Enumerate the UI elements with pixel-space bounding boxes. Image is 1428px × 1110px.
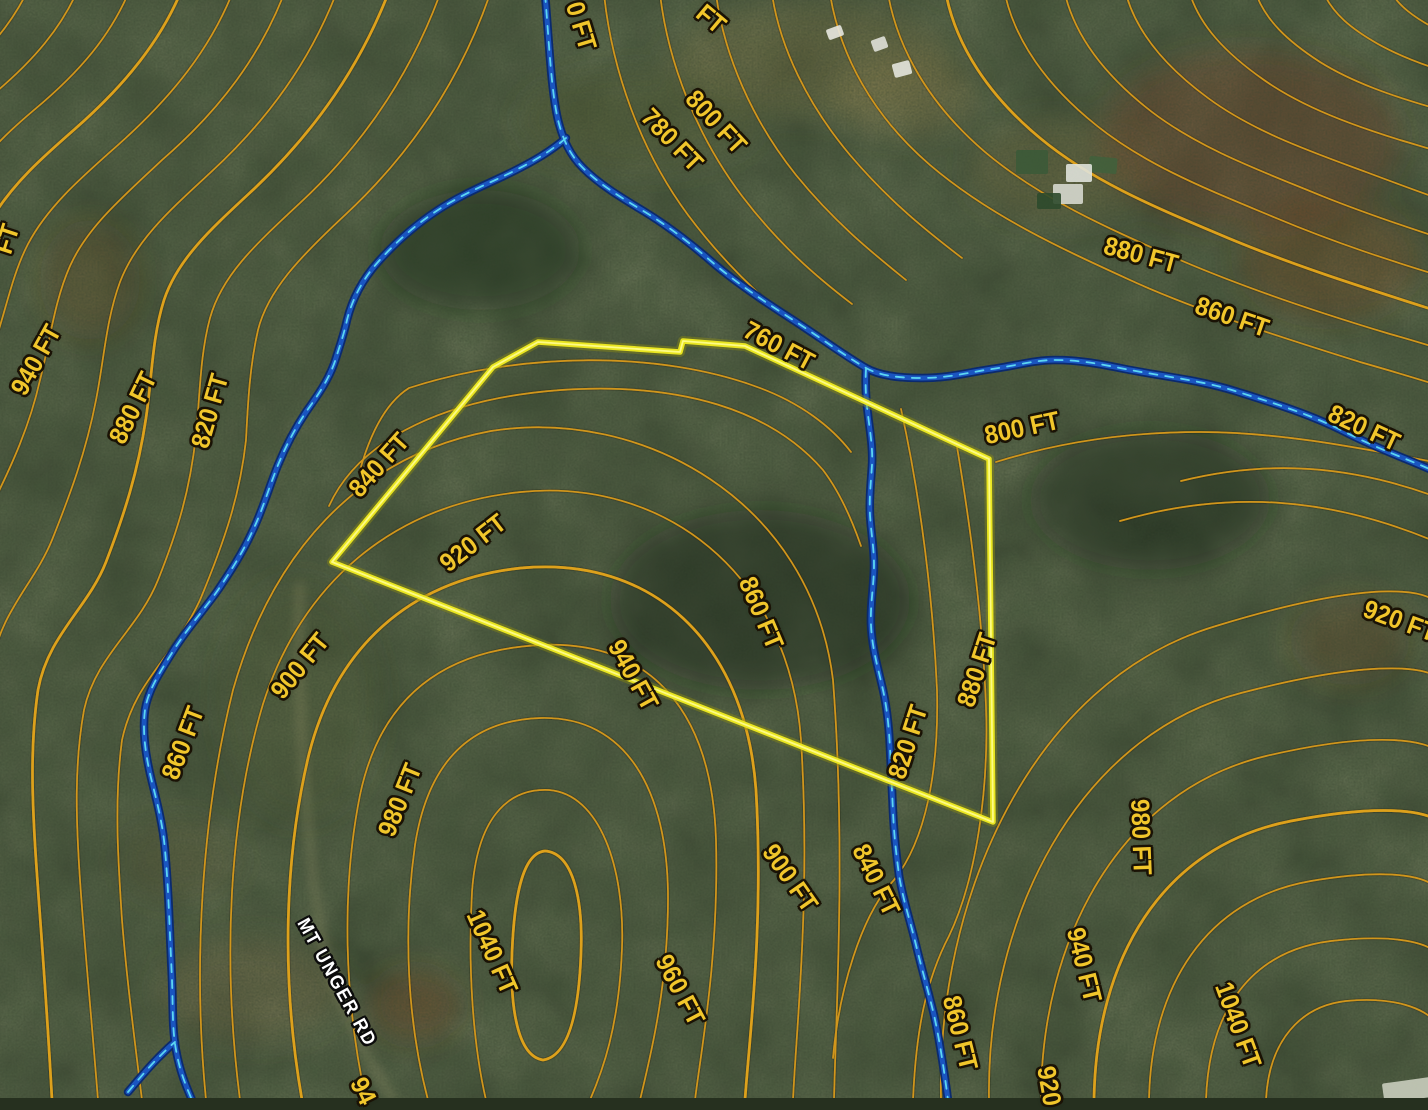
building-footprint [1037,193,1061,209]
building-footprint [1088,156,1117,174]
satellite-topo-layer [0,0,1428,1098]
building-footprint [1016,150,1048,174]
map-canvas[interactable]: 0 FTFT800 FT780 FT880 FT860 FT940 FTFT88… [0,0,1428,1098]
building-footprint [1066,164,1092,182]
